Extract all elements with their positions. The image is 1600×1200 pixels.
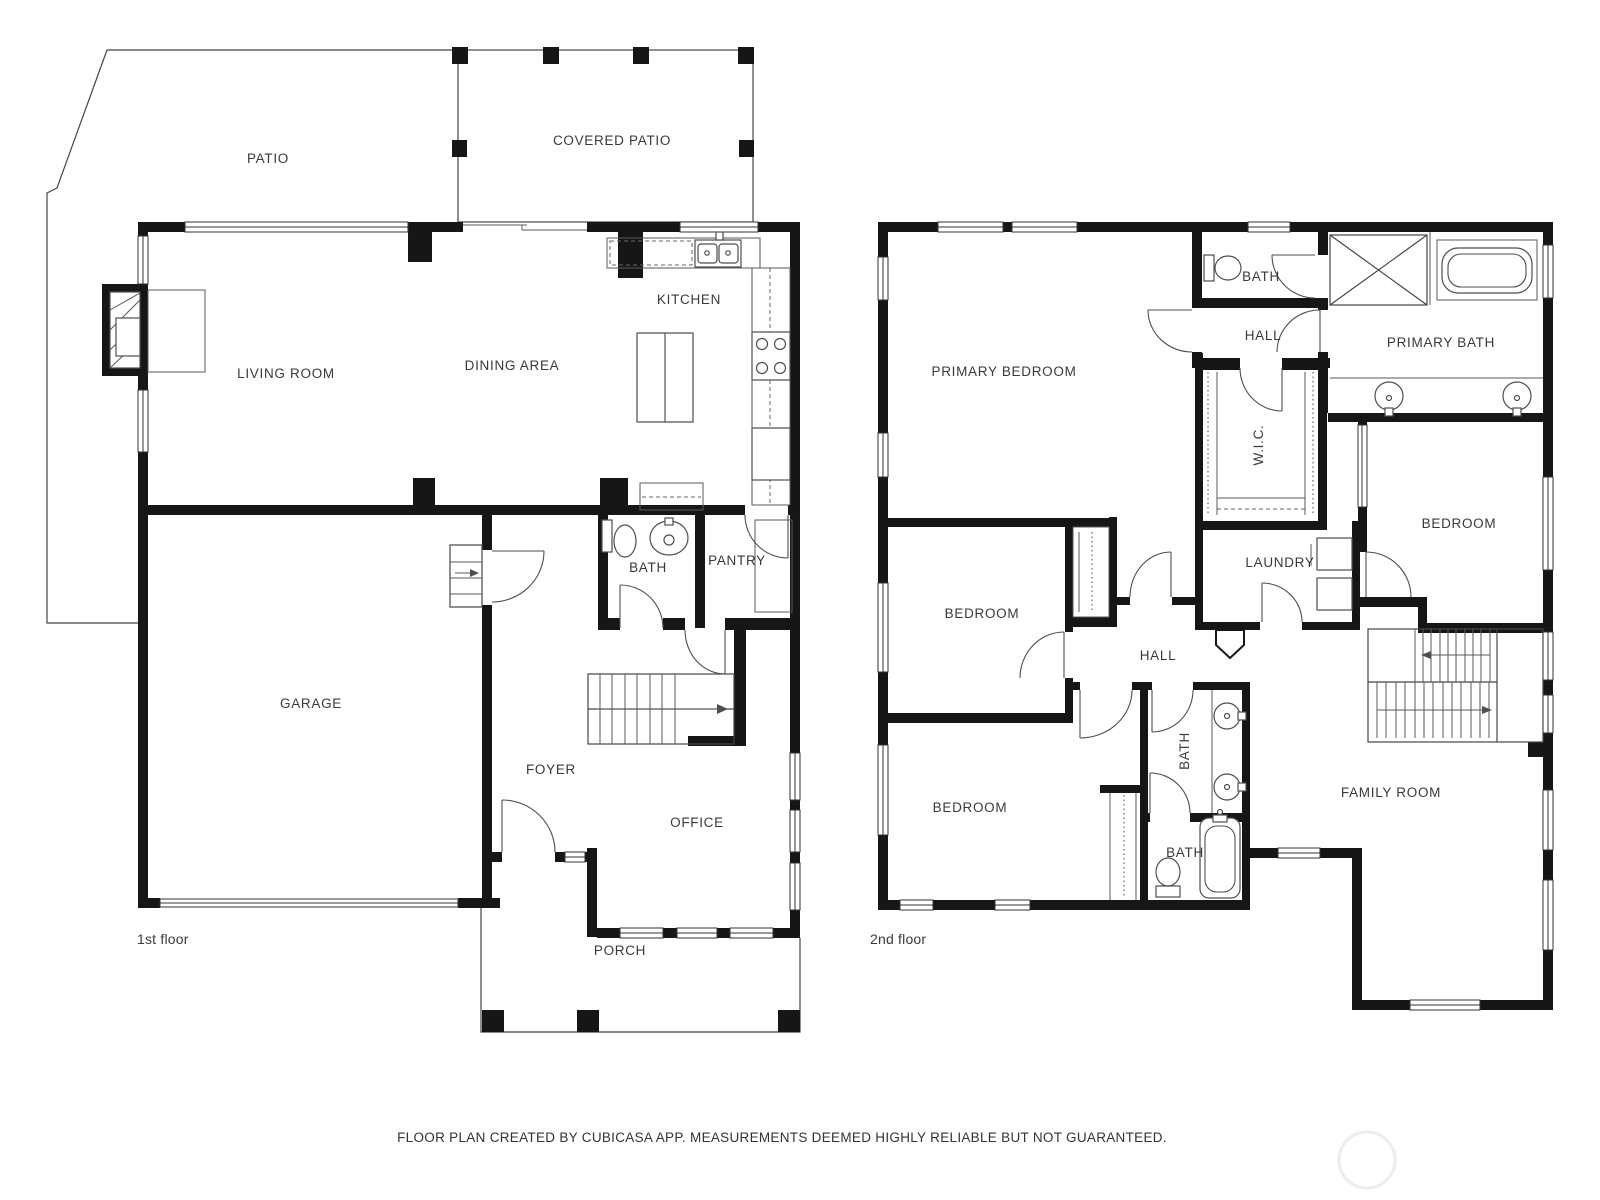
room-label-patio: PATIO <box>247 151 289 166</box>
room-label-bath-mid: BATH <box>1177 732 1192 770</box>
room-label-primary-bedroom: PRIMARY BEDROOM <box>931 364 1076 379</box>
watermark-circle <box>1339 1132 1395 1188</box>
stairs-floor1 <box>588 674 734 744</box>
stairs-floor2 <box>1216 629 1543 742</box>
room-label-dining-area: DINING AREA <box>465 358 560 373</box>
closet-doors <box>1073 527 1136 900</box>
room-label-garage: GARAGE <box>280 696 342 711</box>
bath-mid-fixtures <box>1212 690 1246 813</box>
stair-direction-chevron <box>1216 630 1244 658</box>
room-label-bedroom-lower: BEDROOM <box>933 800 1008 815</box>
floor2-title: 2nd floor <box>870 931 926 947</box>
room-label-bedroom-right: BEDROOM <box>1422 516 1497 531</box>
room-label-bath-lower: BATH <box>1166 845 1204 860</box>
garage-entry-steps <box>450 545 482 607</box>
room-label-laundry: LAUNDRY <box>1245 555 1314 570</box>
room-label-kitchen: KITCHEN <box>657 292 721 307</box>
room-label-bath1: BATH <box>629 560 667 575</box>
floor1-title: 1st floor <box>137 931 189 947</box>
room-label-hall-upper: HALL <box>1245 328 1282 343</box>
primary-bath-fixtures <box>1330 232 1543 416</box>
laundry-appliances <box>1311 538 1352 610</box>
floor2-labels: PRIMARY BEDROOM BATH HALL PRIMARY BATH W… <box>870 269 1496 947</box>
room-label-office: OFFICE <box>670 815 724 830</box>
room-label-hall-mid: HALL <box>1140 648 1177 663</box>
floor1-walls <box>102 222 800 938</box>
room-label-living-room: LIVING ROOM <box>237 366 335 381</box>
footer-disclaimer: FLOOR PLAN CREATED BY CUBICASA APP. MEAS… <box>397 1130 1167 1145</box>
room-label-family-room: FAMILY ROOM <box>1341 785 1441 800</box>
floor-plan-canvas: PATIO COVERED PATIO KITCHEN LIVING ROOM … <box>0 0 1600 1200</box>
room-label-bedroom-mid: BEDROOM <box>945 606 1020 621</box>
room-label-foyer: FOYER <box>526 762 576 777</box>
room-label-primary-bath: PRIMARY BATH <box>1387 335 1495 350</box>
room-label-porch: PORCH <box>594 943 646 958</box>
room-label-wic: W.I.C. <box>1251 425 1266 466</box>
floor-plan-page: PATIO COVERED PATIO KITCHEN LIVING ROOM … <box>0 0 1600 1200</box>
fireplace <box>110 290 205 372</box>
bath-upper-fixtures <box>1204 255 1241 281</box>
room-label-covered-patio: COVERED PATIO <box>553 133 671 148</box>
room-label-pantry: PANTRY <box>708 553 766 568</box>
room-label-bath-upper: BATH <box>1242 269 1280 284</box>
